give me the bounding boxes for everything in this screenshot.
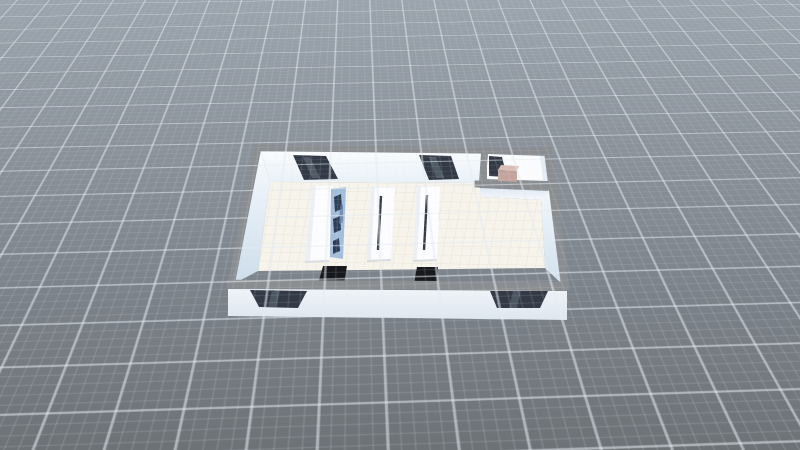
3d-viewport[interactable] — [0, 0, 800, 450]
closet-bottom-wall-cap[interactable] — [478, 184, 550, 187]
back-wall-cap[interactable] — [257, 148, 548, 151]
cabinet-top[interactable] — [498, 165, 519, 171]
cabinet-front[interactable] — [498, 170, 517, 182]
front-wall-cap[interactable] — [231, 284, 565, 286]
building-model — [0, 0, 800, 450]
stool-2[interactable] — [414, 267, 438, 283]
